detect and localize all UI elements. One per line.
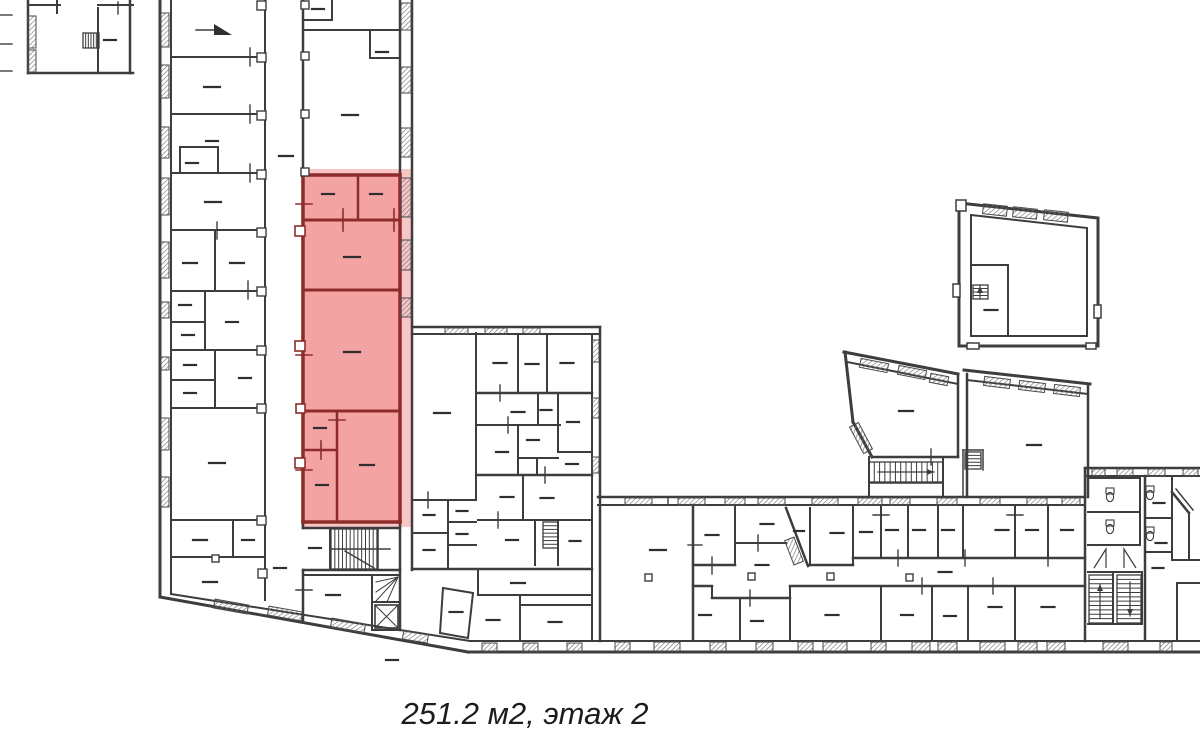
walls-layer bbox=[28, 0, 1200, 652]
floorplan-svg bbox=[0, 0, 1200, 680]
area-floor-caption: 251.2 м2, этаж 2 bbox=[0, 696, 1050, 732]
details-layer bbox=[0, 1, 1167, 660]
highlighted-unit bbox=[301, 169, 413, 527]
floorplan-screenshot: 251.2 м2, этаж 2 bbox=[0, 0, 1200, 745]
stairs-layer bbox=[83, 33, 1141, 623]
windows-layer bbox=[28, 3, 1198, 652]
